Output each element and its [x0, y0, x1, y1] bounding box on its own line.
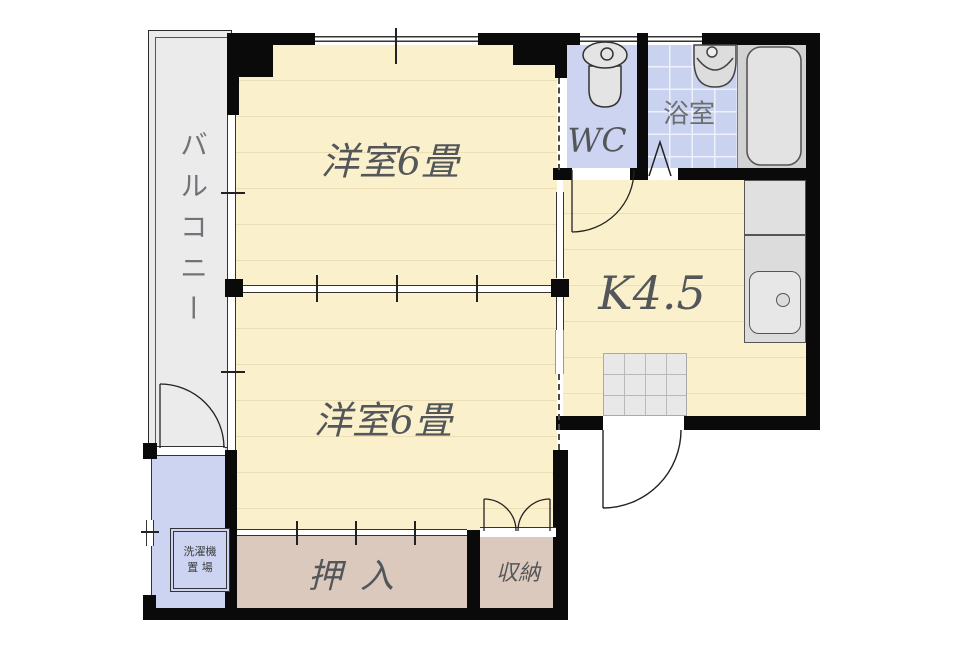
entrance-door-opening [603, 416, 684, 430]
bath-door-opening [648, 168, 678, 180]
storage-doorway [480, 527, 556, 537]
floor-plan: バルコニー 洋室6畳 洋室6畳 K4.5 WC 浴室 押入 収納 洗濯機 置 場 [0, 0, 960, 649]
wall-wc-bath-divider [637, 33, 648, 170]
entrance-door-swing [603, 430, 681, 508]
genkan-tile [603, 353, 687, 416]
wall-topleft-step2 [227, 77, 239, 115]
closet-sliding-front [237, 529, 467, 536]
window-laundry-tick [141, 531, 159, 533]
sliding-door-room1-wc [558, 78, 560, 170]
closet-tick-1 [296, 521, 298, 545]
balcony-label: バルコニー [172, 130, 212, 335]
window-room2-balcony-tick [221, 371, 245, 373]
wall-kitchen-bottom-right [684, 416, 806, 430]
kitchen-sink [749, 271, 801, 334]
wc-door-opening [572, 168, 630, 180]
wall-bath-jamb [630, 168, 648, 180]
bathtub-area-floor [737, 45, 806, 170]
wall-right [806, 33, 820, 430]
laundry-label-line1: 洗濯機 [184, 544, 217, 561]
laundry-box: 洗濯機 置 場 [170, 528, 230, 592]
window-room1-top-tick [395, 28, 397, 64]
storage-label: 収納 [496, 555, 540, 587]
window-laundry-left [146, 520, 154, 546]
kitchen-faucet-icon [776, 293, 790, 307]
post-divider-right [551, 279, 569, 297]
wall-under-bath [678, 168, 806, 180]
western-room-bottom-label: 洋室6畳 [314, 390, 452, 445]
window-room2-balcony [227, 297, 236, 450]
window-room1-top [315, 33, 478, 45]
post-divider-left [225, 279, 243, 297]
closet-tick-2 [355, 521, 357, 545]
laundry-label-line2: 置 場 [187, 560, 213, 577]
wall-room1-wc [555, 33, 567, 78]
laundry-box-inner: 洗濯機 置 場 [173, 531, 227, 589]
partition-tick-1 [316, 275, 318, 302]
wall-topleft-step1 [227, 33, 273, 77]
window-room1-balcony-tick [221, 192, 245, 194]
window-wc-top [580, 33, 637, 45]
closet-label: 押入 [308, 549, 412, 598]
partition-tick-2 [396, 275, 398, 302]
opening-room2-kitchen [555, 330, 564, 374]
window-room1-balcony [227, 115, 236, 279]
bathroom-label: 浴室 [663, 94, 715, 131]
kitchen-label: K4.5 [598, 266, 706, 320]
balcony-door-threshold [157, 446, 225, 456]
kitchen-counter-upper [744, 180, 806, 235]
partition-tick-3 [476, 275, 478, 302]
wall-room2-kitchen-thin [556, 297, 564, 330]
wall-bottom [143, 608, 568, 620]
wall-laundry-corner [143, 595, 156, 620]
wc-label: WC [567, 121, 626, 160]
window-bath-top [648, 33, 702, 45]
wall-room1-kitchen-thin [556, 192, 564, 278]
closet-tick-3 [414, 521, 416, 545]
wall-wc-door-jamb [553, 168, 572, 180]
wall-balcony-door-jamb [143, 443, 157, 459]
western-room-top-label: 洋室6畳 [321, 131, 459, 186]
wall-kitchen-bottom-left [556, 416, 603, 430]
sliding-door-room2-kitchen [558, 374, 560, 450]
wall-closet-storage-divider [467, 530, 480, 608]
